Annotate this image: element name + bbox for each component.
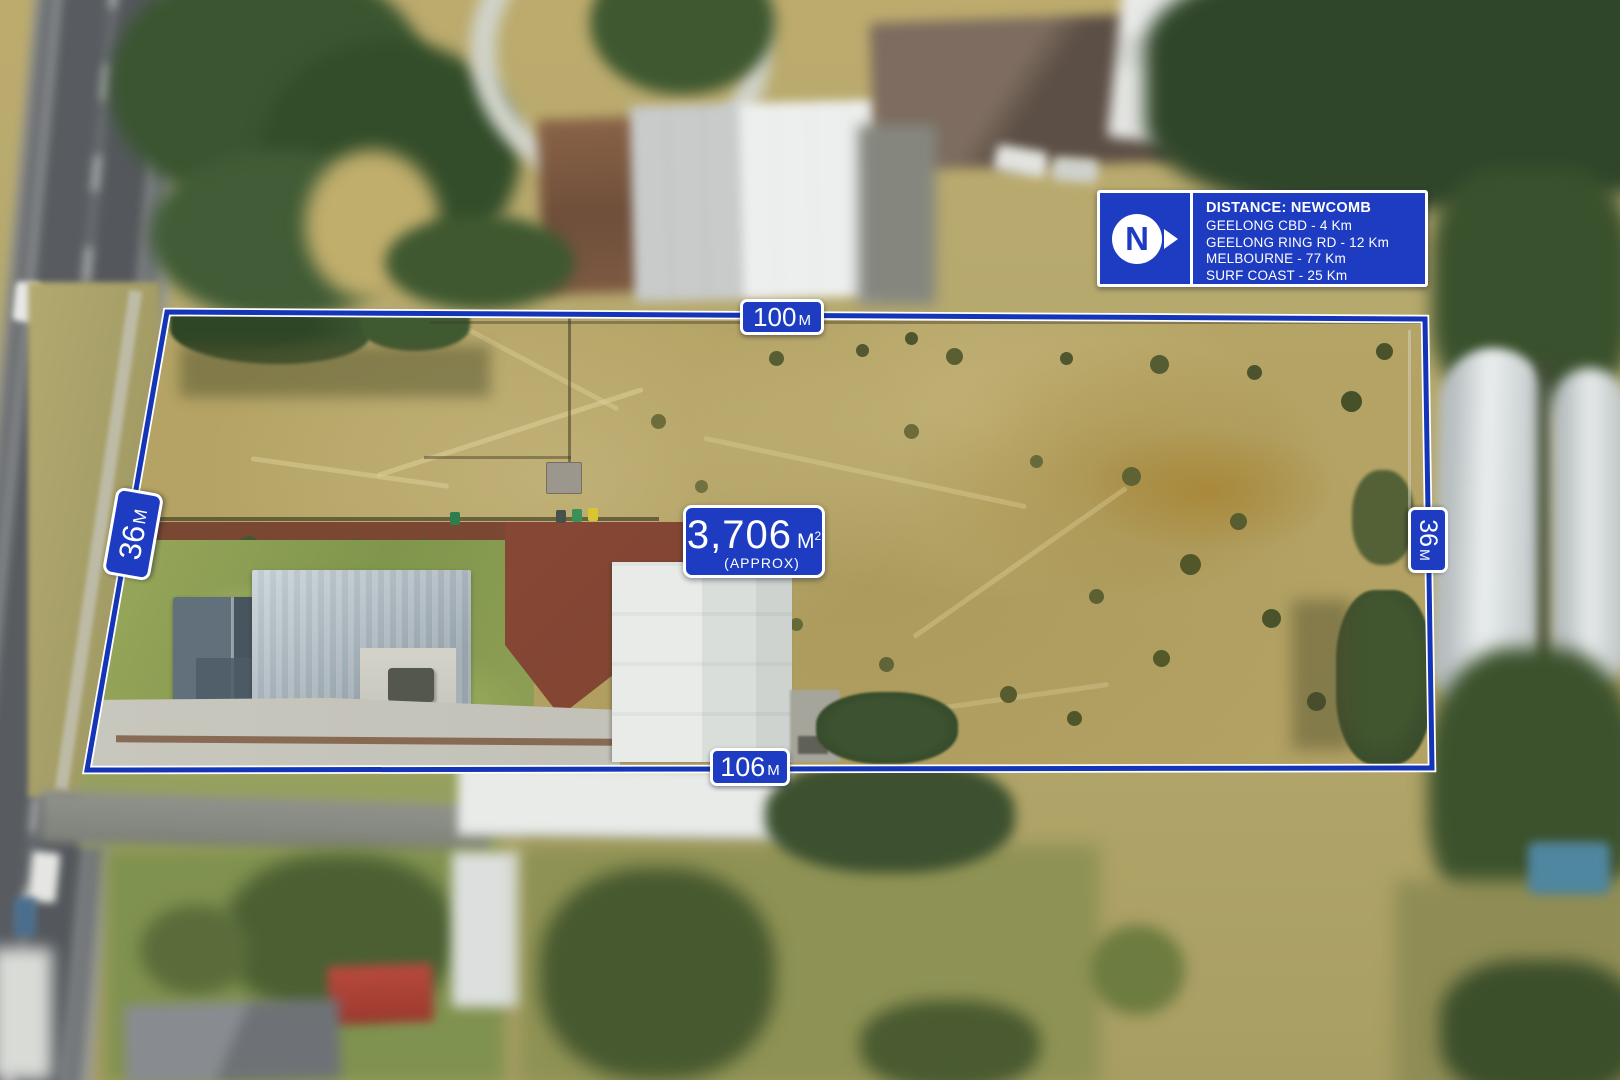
area-value-line: 3,706 M2 [687,515,821,555]
tree-cluster [1440,960,1620,1080]
dimension-value: 106 [720,754,765,781]
tree [1090,925,1185,1015]
tree-shadow [1292,600,1352,750]
green-bin [450,512,460,525]
fence-line [568,314,571,466]
tree-cluster [1352,470,1414,565]
green-bin [572,509,582,522]
area-unit-base: M [797,530,815,553]
area-unit-sup: 2 [814,529,821,543]
distance-list: DISTANCE: NEWCOMB GEELONG CBD - 4 Km GEE… [1193,193,1425,284]
dark-bin [556,510,566,523]
logo-letter: N [1125,220,1149,258]
tree-cluster [385,215,575,310]
distance-item: GEELONG CBD - 4 Km [1206,218,1425,235]
tree-shadow [180,345,490,397]
tree-cluster [540,868,775,1080]
tree-cluster [860,1000,1040,1080]
dimension-unit: M [130,508,150,526]
distance-title: DISTANCE: NEWCOMB [1206,200,1425,216]
dimension-unit: M [798,313,811,328]
greenhouse-roof [1552,368,1620,688]
aerial-photo: 100M 106M 36M 36M 3,706 M2 (APPROX) N DI… [0,0,1620,1080]
logo-arrow-icon [1164,229,1178,249]
white-roof-corner [0,948,52,1080]
dimension-value: 36 [1416,519,1441,547]
white-building-roof [452,852,524,1007]
dimension-unit: M [1418,549,1432,561]
dimension-value: 100 [753,304,796,330]
gray-house-roof [124,998,342,1080]
parked-car [1051,156,1099,184]
dimension-unit: M [767,763,780,778]
fence-line [424,456,571,459]
tree-cluster [765,758,1015,873]
white-shed-roof [612,562,792,762]
area-unit: M2 [797,530,821,552]
small-shed [546,462,582,494]
driveway [858,125,936,305]
blue-structure [14,898,36,936]
tree [140,905,250,995]
play-equipment [388,668,434,702]
swimming-pool [1528,842,1610,894]
distance-item: SURF COAST - 25 Km [1206,268,1425,285]
agency-logo: N [1100,193,1190,284]
yellow-bin [588,508,598,521]
dimension-label-right: 36M [1408,507,1448,573]
area-value: 3,706 [687,515,792,555]
tree-cluster [816,692,958,764]
area-qualifier: (APPROX) [724,556,800,570]
distance-panel: N DISTANCE: NEWCOMB GEELONG CBD - 4 Km G… [1097,190,1428,287]
dimension-value: 36 [113,523,150,562]
logo-n-icon: N [1112,214,1162,264]
area-label: 3,706 M2 (APPROX) [683,505,825,578]
fence-line [430,321,1425,324]
red-roof [327,963,434,1025]
white-shed-roof [629,100,882,302]
dimension-label-bottom: 106M [710,748,790,786]
dimension-label-top: 100M [740,299,824,335]
tree-row [360,303,470,351]
parked-van [27,851,60,904]
distance-item: GEELONG RING RD - 12 Km [1206,235,1425,252]
distance-item: MELBOURNE - 77 Km [1206,251,1425,268]
